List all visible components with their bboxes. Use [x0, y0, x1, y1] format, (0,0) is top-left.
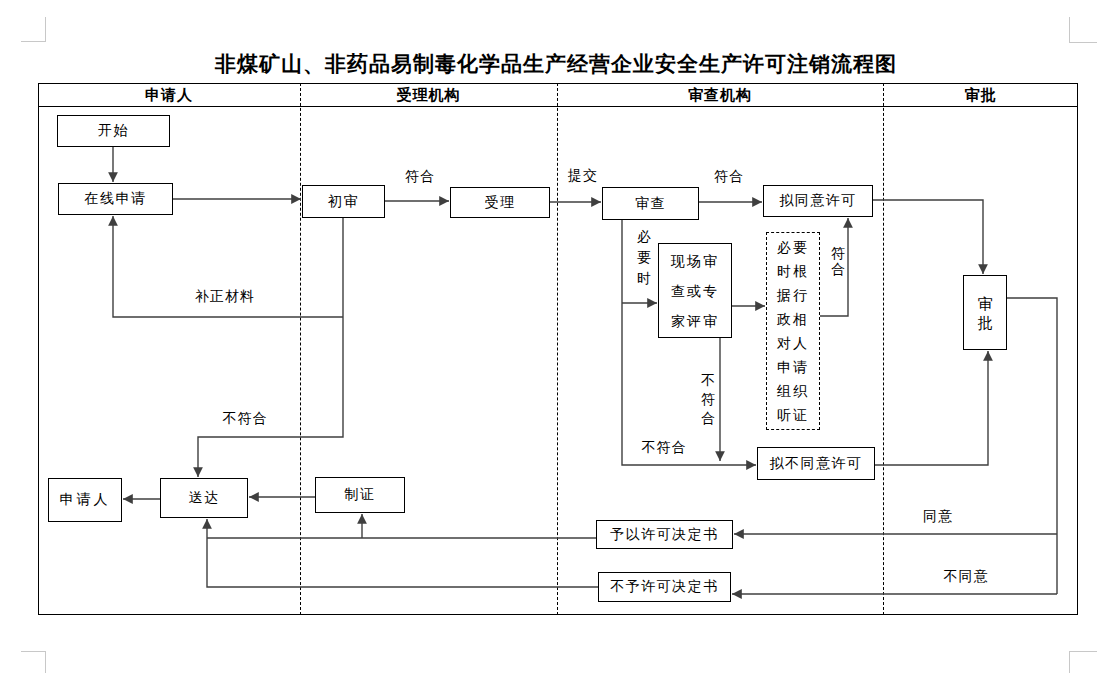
- node-grant-decision: 予以许可决定书: [596, 520, 733, 549]
- label-when-necessary: 必 要 时: [636, 226, 652, 289]
- label-conform-3: 符 合: [830, 245, 846, 277]
- label-not-conform-1: 不符合: [221, 410, 269, 428]
- crop-mark-bottom-left: [21, 651, 46, 673]
- label-not-conform-3: 不符合: [640, 439, 688, 457]
- node-applicant: 申请人: [48, 478, 122, 522]
- lane-header-review: 审查机构: [557, 85, 883, 105]
- node-approve: 审 批: [963, 275, 1007, 350]
- label-submit: 提交: [561, 167, 605, 185]
- node-onsite-review: 现场审 查或专 家评审: [658, 243, 732, 338]
- document-page: 非煤矿山、非药品易制毒化学品生产经营企业安全生产许可注销流程图 申请人 受理机构…: [0, 0, 1112, 675]
- node-deliver: 送达: [160, 478, 248, 518]
- node-propose-approve: 拟同意许可: [763, 185, 873, 217]
- lane-divider-1: [300, 83, 301, 615]
- label-conform-1: 符合: [398, 168, 442, 186]
- node-start: 开始: [57, 115, 170, 147]
- node-review: 审查: [602, 187, 699, 220]
- lane-divider-2: [557, 83, 558, 615]
- crop-mark-top-left: [21, 17, 46, 42]
- label-disagree: 不同意: [941, 568, 991, 586]
- label-conform-2: 符合: [707, 168, 751, 186]
- node-accept: 受理: [450, 187, 550, 218]
- node-propose-disapprove: 拟不同意许可: [757, 447, 875, 480]
- lane-header-applicant: 申请人: [38, 85, 300, 105]
- label-supplement-materials: 补正材料: [194, 288, 256, 306]
- crop-mark-bottom-right: [1069, 651, 1097, 673]
- crop-mark-top-right: [1069, 17, 1097, 43]
- page-title: 非煤矿山、非药品易制毒化学品生产经营企业安全生产许可注销流程图: [0, 50, 1112, 78]
- header-separator-line: [38, 106, 1078, 107]
- swimlane-table-border: [38, 83, 1078, 615]
- node-make-certificate: 制证: [315, 477, 405, 513]
- lane-header-acceptance: 受理机构: [300, 85, 557, 105]
- node-deny-decision: 不予许可决定书: [598, 572, 731, 602]
- lane-divider-3: [883, 83, 884, 615]
- label-not-conform-2: 不 符 合: [700, 371, 716, 428]
- label-agree: 同意: [916, 508, 960, 526]
- node-hearing: 必要 时根 据行 政相 对人 申请 组织 听证: [766, 232, 820, 430]
- lane-header-approval: 审批: [883, 85, 1078, 105]
- node-initial-review: 初审: [302, 185, 385, 218]
- node-online-apply: 在线申请: [58, 183, 173, 215]
